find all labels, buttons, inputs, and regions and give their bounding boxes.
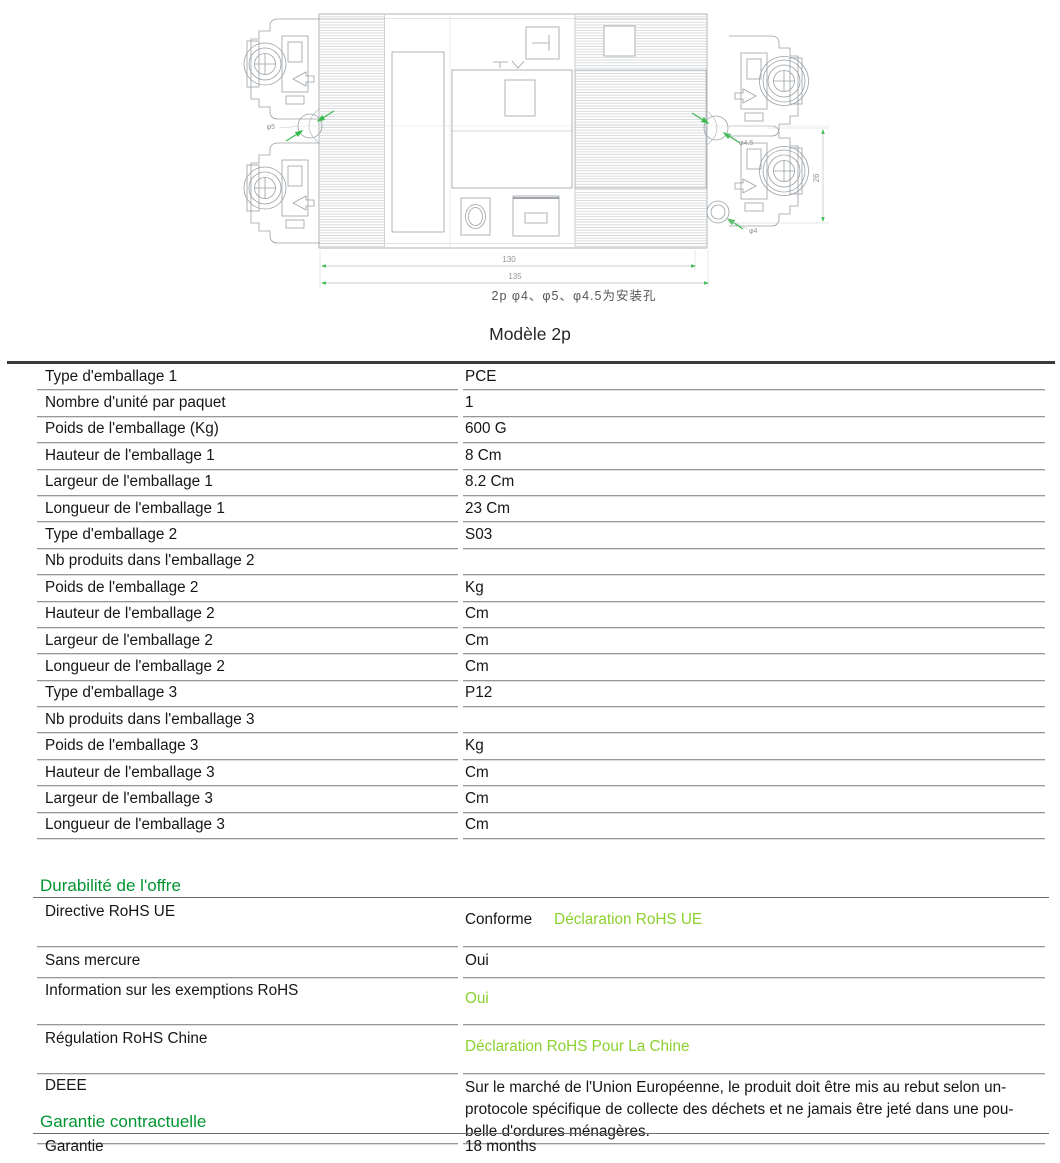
weee-text-line: Sur le marché de l'Union Européenne, le … — [465, 1077, 1045, 1099]
spec-label: Poids de l'emballage (Kg) — [37, 417, 458, 443]
table-row: Poids de l'emballage 3Kg — [37, 733, 1045, 759]
table-row: Longueur de l'emballage 2Cm — [37, 654, 1045, 680]
spec-value: Cm — [463, 786, 1045, 812]
rohs-china-declaration-link[interactable]: Déclaration RoHS Pour La Chine — [465, 1038, 689, 1055]
spec-value: PCE — [463, 364, 1045, 390]
spec-label: Type d'emballage 2 — [37, 522, 458, 548]
spec-label: Longueur de l'emballage 3 — [37, 813, 458, 839]
table-row: Poids de l'emballage (Kg)600 G — [37, 417, 1045, 443]
spec-label: Poids de l'emballage 2 — [37, 575, 458, 601]
spec-value: 8.2 Cm — [463, 470, 1045, 496]
spec-label: Type d'emballage 3 — [37, 681, 458, 707]
rohs-eu-status: Conforme — [465, 911, 532, 928]
spec-value: Déclaration RoHS Pour La Chine — [463, 1025, 1045, 1074]
spec-label: Nombre d'unité par paquet — [37, 390, 458, 416]
spec-value: Cm — [463, 654, 1045, 680]
spec-label: Longueur de l'emballage 1 — [37, 496, 458, 522]
table-row: Information sur les exemptions RoHS Oui — [37, 978, 1045, 1025]
warranty-table: Garantie 18 months — [32, 1134, 1050, 1163]
spec-value: Cm — [463, 628, 1045, 654]
spec-value: Cm — [463, 760, 1045, 786]
spec-label: Largeur de l'emballage 3 — [37, 786, 458, 812]
spec-label: Hauteur de l'emballage 2 — [37, 602, 458, 628]
spec-value — [463, 549, 1045, 575]
spec-label: Largeur de l'emballage 2 — [37, 628, 458, 654]
table-row: Type d'emballage 1PCE — [37, 364, 1045, 390]
phi4-label: φ4 — [749, 228, 758, 235]
spec-value: 8 Cm — [463, 443, 1045, 469]
spec-value: 1 — [463, 390, 1045, 416]
spec-label: Poids de l'emballage 3 — [37, 733, 458, 759]
drawing-caption: 2p φ4、φ5、φ4.5为安装孔 — [492, 288, 657, 303]
table-row: Sans mercure Oui — [37, 947, 1045, 978]
spec-value: 600 G — [463, 417, 1045, 443]
spec-value: P12 — [463, 681, 1045, 707]
durability-table: Directive RoHS UE ConformeDéclaration Ro… — [32, 898, 1050, 1144]
spec-label: Nb produits dans l'emballage 3 — [37, 707, 458, 733]
dim-right: 26 — [812, 173, 821, 182]
table-row: Largeur de l'emballage 2Cm — [37, 628, 1045, 654]
spec-value: S03 — [463, 522, 1045, 548]
warranty-heading: Garantie contractuelle — [40, 1112, 206, 1132]
table-row: Hauteur de l'emballage 18 Cm — [37, 443, 1045, 469]
spec-label: Hauteur de l'emballage 3 — [37, 760, 458, 786]
spec-value: Oui — [463, 978, 1045, 1025]
table-row: Hauteur de l'emballage 3Cm — [37, 760, 1045, 786]
technical-drawing: φ5 φ4.5 φ4 130 135 26 2p φ4、φ5、φ4.5为安装孔 — [237, 2, 837, 312]
device-body-outline — [319, 14, 707, 248]
weee-text-line: protocole spécifique de collecte des déc… — [465, 1099, 1045, 1121]
spec-value — [463, 707, 1045, 733]
table-row: Type d'emballage 3P12 — [37, 681, 1045, 707]
phi5-label: φ5 — [267, 124, 276, 131]
dimension-lines — [322, 130, 823, 283]
page-title: Modèle 2p — [0, 324, 1060, 345]
spec-label: Garantie — [37, 1134, 458, 1163]
spec-value: Kg — [463, 575, 1045, 601]
spec-label: Longueur de l'emballage 2 — [37, 654, 458, 680]
table-row: Régulation RoHS Chine Déclaration RoHS P… — [37, 1025, 1045, 1074]
spec-value: ConformeDéclaration RoHS UE — [463, 898, 1045, 947]
table-row: Type d'emballage 2S03 — [37, 522, 1045, 548]
table-row: Longueur de l'emballage 3Cm — [37, 813, 1045, 839]
spec-label: Largeur de l'emballage 1 — [37, 470, 458, 496]
spec-label: Directive RoHS UE — [37, 898, 458, 947]
table-row: Largeur de l'emballage 3Cm — [37, 786, 1045, 812]
spec-label: Régulation RoHS Chine — [37, 1025, 458, 1074]
table-row: Poids de l'emballage 2Kg — [37, 575, 1045, 601]
phi45-label: φ4.5 — [739, 140, 753, 147]
spec-label: Nb produits dans l'emballage 2 — [37, 549, 458, 575]
spec-label: Sans mercure — [37, 947, 458, 978]
table-row: Nb produits dans l'emballage 2 — [37, 549, 1045, 575]
dim-130: 130 — [502, 255, 516, 264]
table-row: Longueur de l'emballage 123 Cm — [37, 496, 1045, 522]
spec-label: Information sur les exemptions RoHS — [37, 978, 458, 1025]
spec-label: Type d'emballage 1 — [37, 364, 458, 390]
table-row: Directive RoHS UE ConformeDéclaration Ro… — [37, 898, 1045, 947]
packaging-table: Type d'emballage 1PCE Nombre d'unité par… — [32, 364, 1050, 839]
durability-heading: Durabilité de l'offre — [40, 876, 181, 896]
spec-value: 18 months — [463, 1134, 1045, 1163]
spec-value: 23 Cm — [463, 496, 1045, 522]
dim-135: 135 — [508, 272, 522, 281]
dimension-extensions — [320, 128, 829, 288]
table-row: Hauteur de l'emballage 2Cm — [37, 602, 1045, 628]
spec-label: Hauteur de l'emballage 1 — [37, 443, 458, 469]
table-row: Nombre d'unité par paquet1 — [37, 390, 1045, 416]
spec-value: Cm — [463, 813, 1045, 839]
rohs-eu-declaration-link[interactable]: Déclaration RoHS UE — [554, 911, 702, 928]
table-row: Garantie 18 months — [37, 1134, 1045, 1163]
rohs-exemptions-link[interactable]: Oui — [465, 990, 489, 1007]
spec-value: Cm — [463, 602, 1045, 628]
table-row: Nb produits dans l'emballage 3 — [37, 707, 1045, 733]
spec-value: Oui — [463, 947, 1045, 978]
spec-value: Kg — [463, 733, 1045, 759]
table-row: Largeur de l'emballage 18.2 Cm — [37, 470, 1045, 496]
